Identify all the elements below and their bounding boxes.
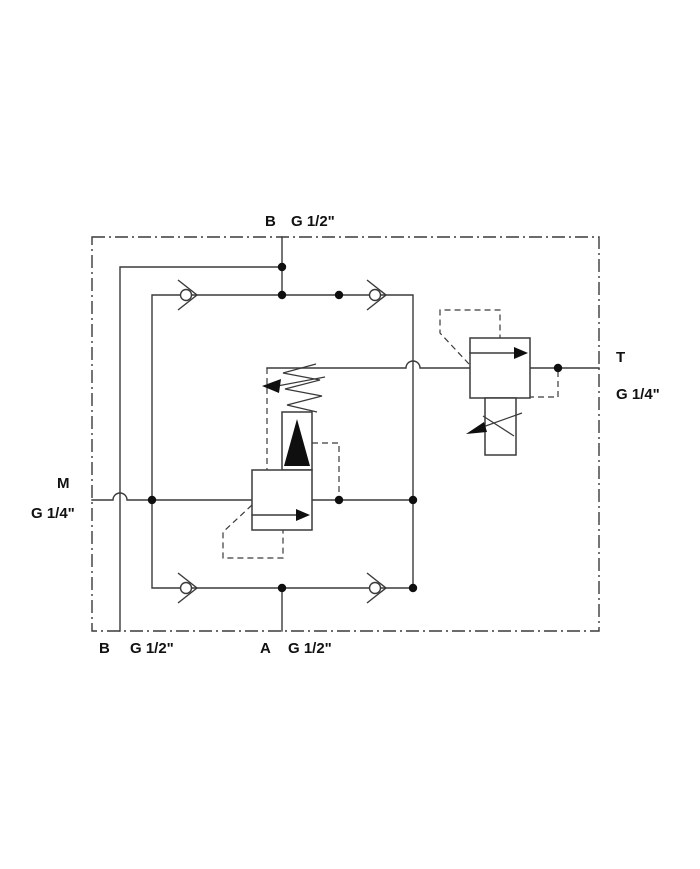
schematic-page: B G 1/2" T G 1/4" M G 1/4" B G 1/2" A G … xyxy=(0,0,700,869)
port-b-bottom-size: G 1/2" xyxy=(130,640,174,657)
port-m-label: M xyxy=(57,475,70,492)
pilot-relief-sense-line-right xyxy=(530,371,558,397)
port-a-size: G 1/2" xyxy=(288,640,332,657)
check-valve-ball-icon xyxy=(370,290,381,301)
junction-dot xyxy=(278,584,286,592)
adjust-arrowhead-icon xyxy=(466,422,487,434)
spring-adjust-arrowhead-icon xyxy=(262,379,281,393)
check-valve-ball-icon xyxy=(181,583,192,594)
port-b-top-size: G 1/2" xyxy=(291,213,335,230)
check-valve-ball-icon xyxy=(181,290,192,301)
junction-dot xyxy=(554,364,562,372)
junction-dot xyxy=(335,496,343,504)
port-m-line-left xyxy=(92,493,252,500)
junction-dot xyxy=(335,291,343,299)
junction-dot xyxy=(409,496,417,504)
junction-dot xyxy=(409,584,417,592)
manifold-boundary xyxy=(92,237,599,631)
relief-to-t-line xyxy=(267,361,470,368)
adjustable-spring-icon xyxy=(283,364,322,412)
port-m-size: G 1/4" xyxy=(31,505,75,522)
check-valve-ball-icon xyxy=(370,583,381,594)
main-relief-pilot-line-right xyxy=(312,443,339,497)
main-relief-valve xyxy=(252,364,325,530)
main-stage-body xyxy=(252,470,312,530)
hydraulic-schematic: B G 1/2" T G 1/4" M G 1/4" B G 1/2" A G … xyxy=(0,0,700,869)
port-t-size: G 1/4" xyxy=(616,386,660,403)
relief-cartridge-body xyxy=(470,338,530,398)
port-a-label: A xyxy=(260,640,271,657)
pilot-relief-valve xyxy=(466,338,530,455)
port-b-bottom-label: B xyxy=(99,640,110,657)
junction-dot xyxy=(278,263,286,271)
circuit-lines xyxy=(92,237,599,631)
adjustment-section-body xyxy=(485,398,516,455)
port-b-top-label: B xyxy=(265,213,276,230)
port-t-label: T xyxy=(616,349,625,366)
junction-dot xyxy=(278,291,286,299)
port-b-bottom-line xyxy=(120,267,282,631)
junction-dot xyxy=(148,496,156,504)
